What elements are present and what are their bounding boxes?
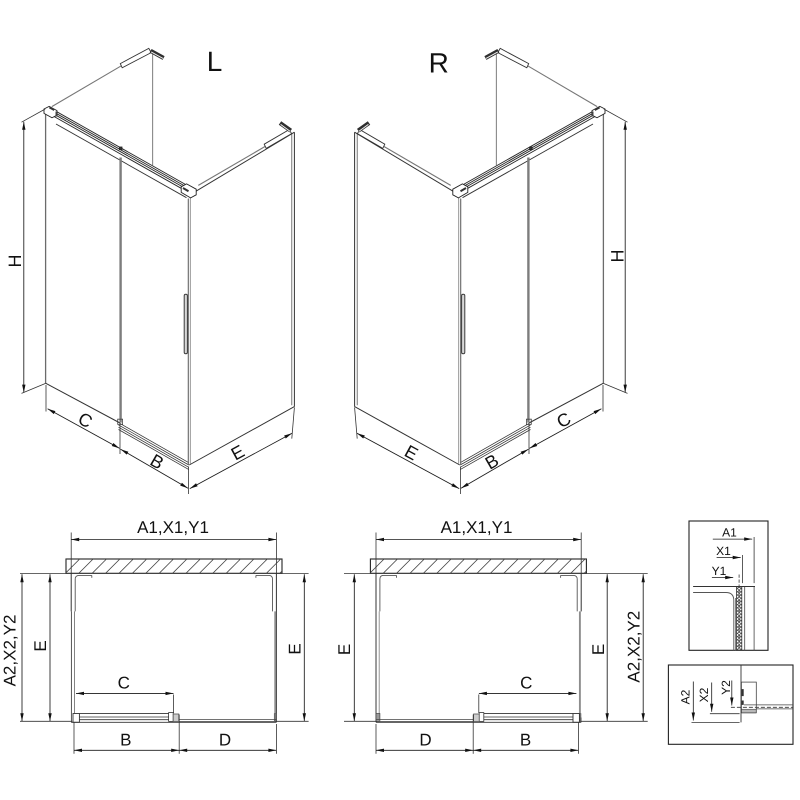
svg-text:A1: A1 — [722, 526, 737, 540]
svg-text:E: E — [31, 640, 50, 651]
svg-text:D: D — [219, 731, 231, 750]
svg-text:Y2: Y2 — [719, 680, 733, 695]
svg-text:C: C — [118, 674, 130, 693]
svg-text:A1,X1,Y1: A1,X1,Y1 — [441, 518, 513, 537]
svg-text:A2,X2,Y2: A2,X2,Y2 — [1, 615, 20, 687]
svg-text:E: E — [286, 643, 305, 654]
svg-text:R: R — [429, 48, 449, 79]
svg-text:H: H — [608, 250, 628, 263]
svg-text:L: L — [207, 46, 223, 77]
svg-text:E: E — [335, 644, 354, 655]
svg-text:A2: A2 — [679, 689, 693, 704]
svg-text:X1: X1 — [716, 544, 731, 558]
svg-text:Y1: Y1 — [712, 564, 727, 578]
svg-text:H: H — [5, 255, 25, 268]
svg-text:D: D — [419, 731, 431, 750]
svg-text:B: B — [520, 731, 531, 750]
svg-text:X2: X2 — [697, 687, 711, 702]
svg-text:A2,X2,Y2: A2,X2,Y2 — [625, 611, 644, 683]
svg-text:C: C — [520, 674, 532, 693]
svg-text:A1,X1,Y1: A1,X1,Y1 — [137, 518, 209, 537]
svg-text:B: B — [120, 731, 131, 750]
svg-text:E: E — [589, 644, 608, 655]
